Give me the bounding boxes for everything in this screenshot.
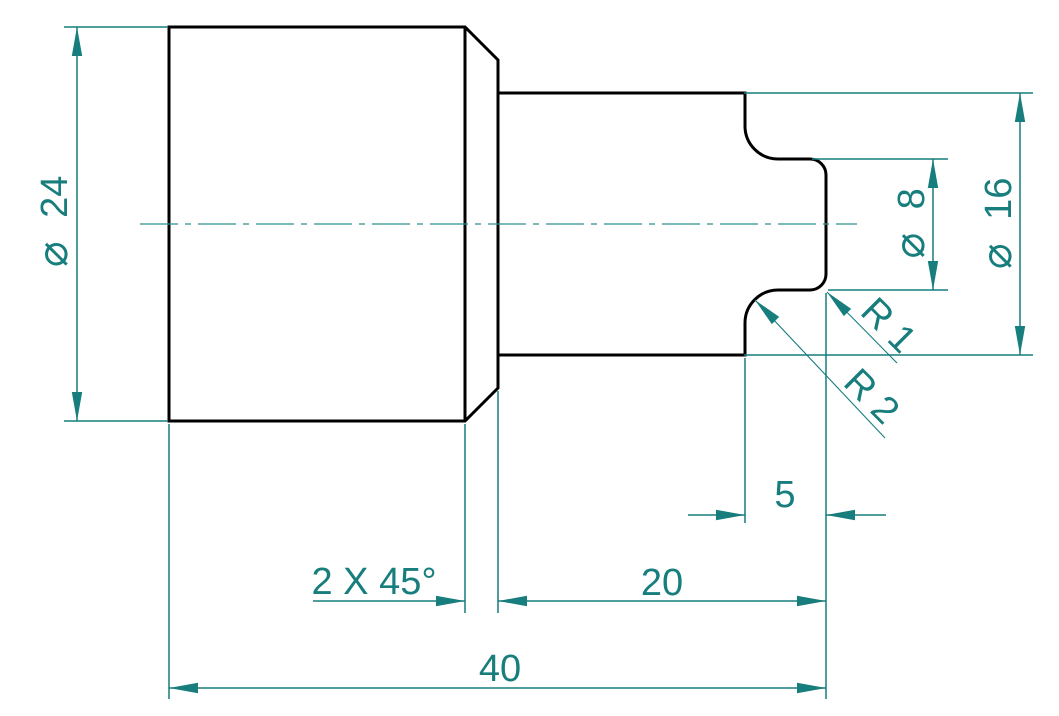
drawing-page: { "drawing": { "view": "side view of a t… (0, 0, 1059, 716)
dim-label-length40: 40 (479, 648, 521, 690)
diameter-symbol: ⌀ (28, 242, 78, 268)
arrowhead-dia8-top (928, 159, 938, 188)
dimension-dia24: ⌀ 24 (28, 27, 82, 421)
dim-label-length20: 20 (641, 562, 683, 604)
arrowhead-length20-left (498, 596, 527, 606)
arrowhead-length40-right (797, 683, 826, 693)
arrowhead-r2 (751, 296, 779, 324)
arrowhead-length5-left (716, 510, 745, 520)
arrowhead-dia24-bottom (72, 392, 82, 421)
dim-label-dia24: ⌀ 24 (28, 176, 78, 269)
technical-drawing-canvas: ⌀ 24 ⌀ 16 ⌀ 8 5 20 (0, 0, 1059, 716)
dimension-radius-r1: R 1 (823, 288, 924, 363)
dim-label-chamfer: 2 X 45° (311, 561, 436, 603)
dimension-dia8: ⌀ 8 (885, 159, 938, 290)
dim-value: 16 (978, 178, 1020, 220)
dimension-length5: 5 (688, 474, 886, 520)
arrowhead-r1 (823, 288, 851, 316)
arrowhead-chamfer (436, 596, 465, 606)
dim-value: 8 (891, 188, 933, 209)
dim-label-dia8: ⌀ 8 (885, 188, 935, 260)
diameter-symbol: ⌀ (885, 234, 935, 260)
arrowhead-length5-right (826, 510, 855, 520)
dim-label-length5: 5 (774, 474, 795, 516)
dimension-length40: 40 (169, 648, 826, 693)
dimension-chamfer: 2 X 45° (311, 561, 465, 606)
arrowhead-dia8-bottom (928, 261, 938, 290)
arrowhead-dia24-top (72, 27, 82, 56)
dim-value: 24 (34, 176, 76, 218)
arrowhead-length20-right (797, 596, 826, 606)
arrowhead-length40-left (169, 683, 198, 693)
arrowhead-dia16-bottom (1015, 326, 1025, 355)
dim-label-r2: R 2 (836, 361, 908, 433)
dimension-length20: 20 (498, 562, 826, 606)
dim-label-r1: R 1 (853, 290, 925, 362)
dim-label-dia16: ⌀ 16 (972, 178, 1022, 271)
extension-lines (64, 27, 1033, 699)
diameter-symbol: ⌀ (972, 244, 1022, 270)
dimension-dia16: ⌀ 16 (972, 93, 1025, 355)
arrowhead-dia16-top (1015, 93, 1025, 122)
